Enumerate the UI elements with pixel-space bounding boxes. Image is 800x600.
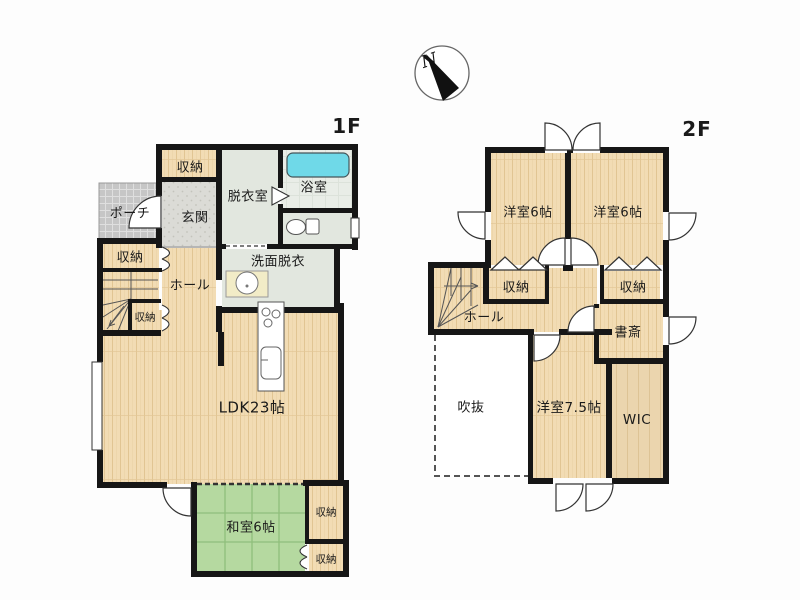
room-label-washroom: 洗面脱衣 <box>251 251 305 270</box>
ldk-window <box>92 362 102 450</box>
room-label-storage-c: 収納 <box>316 505 337 520</box>
room-label-dressing: 脱衣室 <box>228 186 269 205</box>
balcony-door-left-arc <box>545 123 572 150</box>
room-label-storage-2r: 収納 <box>619 277 646 296</box>
bedroom-left-window-arc <box>458 212 485 239</box>
floor-plan-graphics: N <box>0 0 800 600</box>
toilet-icon <box>287 219 320 235</box>
floor1-title: 1F <box>332 114 362 138</box>
room-label-porch: ポーチ <box>110 203 151 222</box>
bedroom-main-exit-door1-arc <box>556 484 583 511</box>
room-label-hall1: ホール <box>170 275 211 294</box>
room-label-wic: WIC <box>623 412 651 428</box>
bedroom-main-exit-door2-arc <box>586 484 613 511</box>
room-label-storage-a: 収納 <box>116 247 143 266</box>
room-label-hall2: ホール <box>464 307 505 326</box>
room-label-storage-b: 収納 <box>135 310 156 325</box>
bathtub-icon <box>287 153 349 177</box>
floor-plan-page: N 1F ポーチ 収納 玄関 脱衣室 浴室 洗面脱衣 ホール 収納 収納 LDK… <box>0 0 800 600</box>
room-label-bedroom-right: 洋室6帖 <box>593 202 642 221</box>
room-label-bathroom: 浴室 <box>300 177 327 196</box>
balcony-door-right-arc <box>573 123 600 150</box>
room-label-japanese: 和室6帖 <box>226 517 275 536</box>
room-label-entrance: 玄関 <box>181 207 208 226</box>
room-label-storage-2l: 収納 <box>502 277 529 296</box>
room-label-study: 書斎 <box>614 322 641 341</box>
room-label-storage-d: 収納 <box>316 552 337 567</box>
room-label-ldk: LDK23帖 <box>219 397 286 418</box>
room-label-bedroom-main: 洋室7.5帖 <box>537 396 602 416</box>
sink-icon <box>261 347 281 379</box>
washbasin-icon <box>226 271 268 297</box>
toilet-window <box>351 218 359 238</box>
room-label-ent-storage: 収納 <box>176 157 203 176</box>
bedroom-right-window-arc <box>669 213 696 240</box>
floor2-title: 2F <box>682 117 712 141</box>
room-label-bedroom-left: 洋室6帖 <box>503 202 552 221</box>
ldk-tatami-door-arc <box>163 488 191 516</box>
kitchen-icon <box>258 302 284 391</box>
study-window-arc <box>669 317 696 344</box>
room-label-void: 吹抜 <box>457 397 484 416</box>
compass-icon: N <box>415 46 469 101</box>
